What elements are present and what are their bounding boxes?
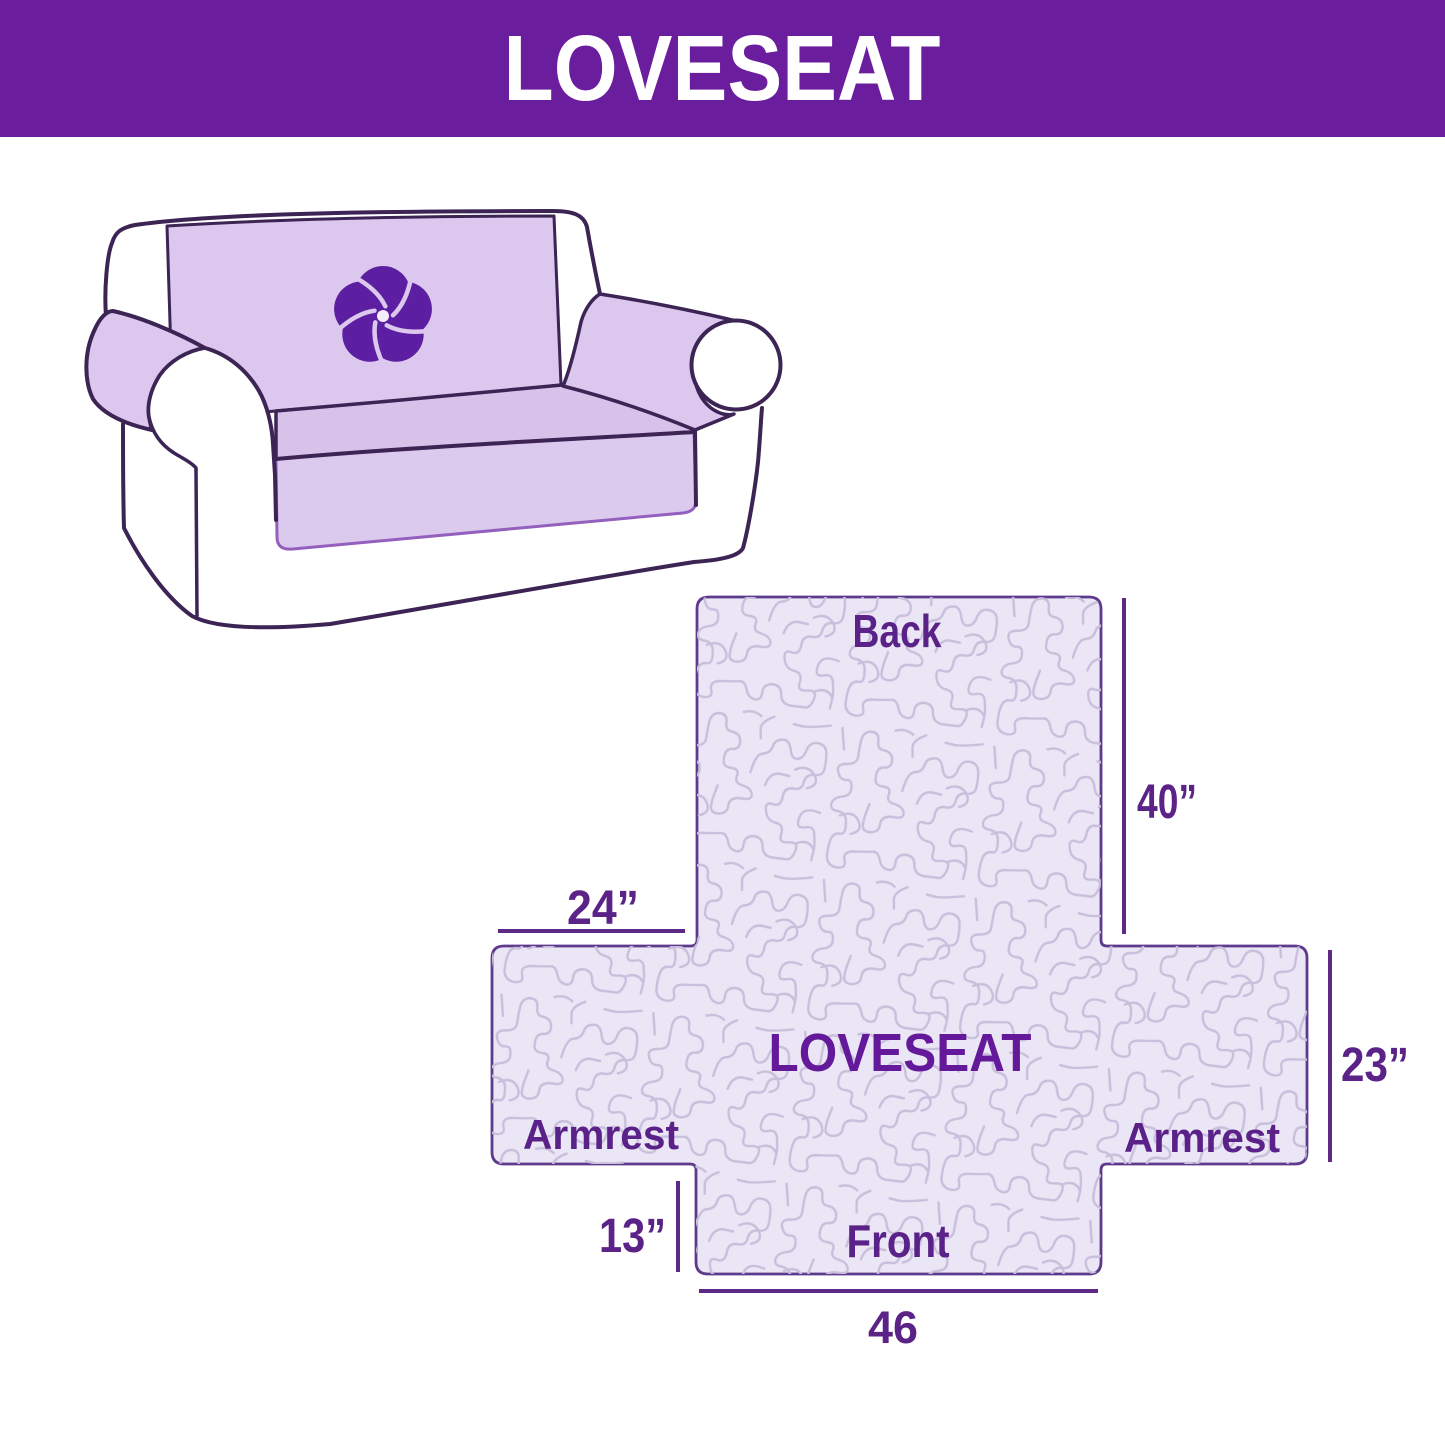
- svg-text:Back: Back: [853, 605, 942, 657]
- svg-text:24”: 24”: [567, 882, 639, 935]
- svg-text:LOVESEAT: LOVESEAT: [769, 1023, 1032, 1083]
- svg-text:Armrest: Armrest: [523, 1111, 679, 1158]
- svg-text:46: 46: [868, 1302, 918, 1353]
- svg-text:23”: 23”: [1341, 1039, 1409, 1092]
- svg-text:Armrest: Armrest: [1124, 1114, 1280, 1161]
- svg-text:13”: 13”: [599, 1210, 666, 1263]
- svg-text:Front: Front: [847, 1215, 950, 1267]
- svg-text:LOVESEAT: LOVESEAT: [504, 16, 941, 120]
- svg-text:40”: 40”: [1137, 776, 1197, 829]
